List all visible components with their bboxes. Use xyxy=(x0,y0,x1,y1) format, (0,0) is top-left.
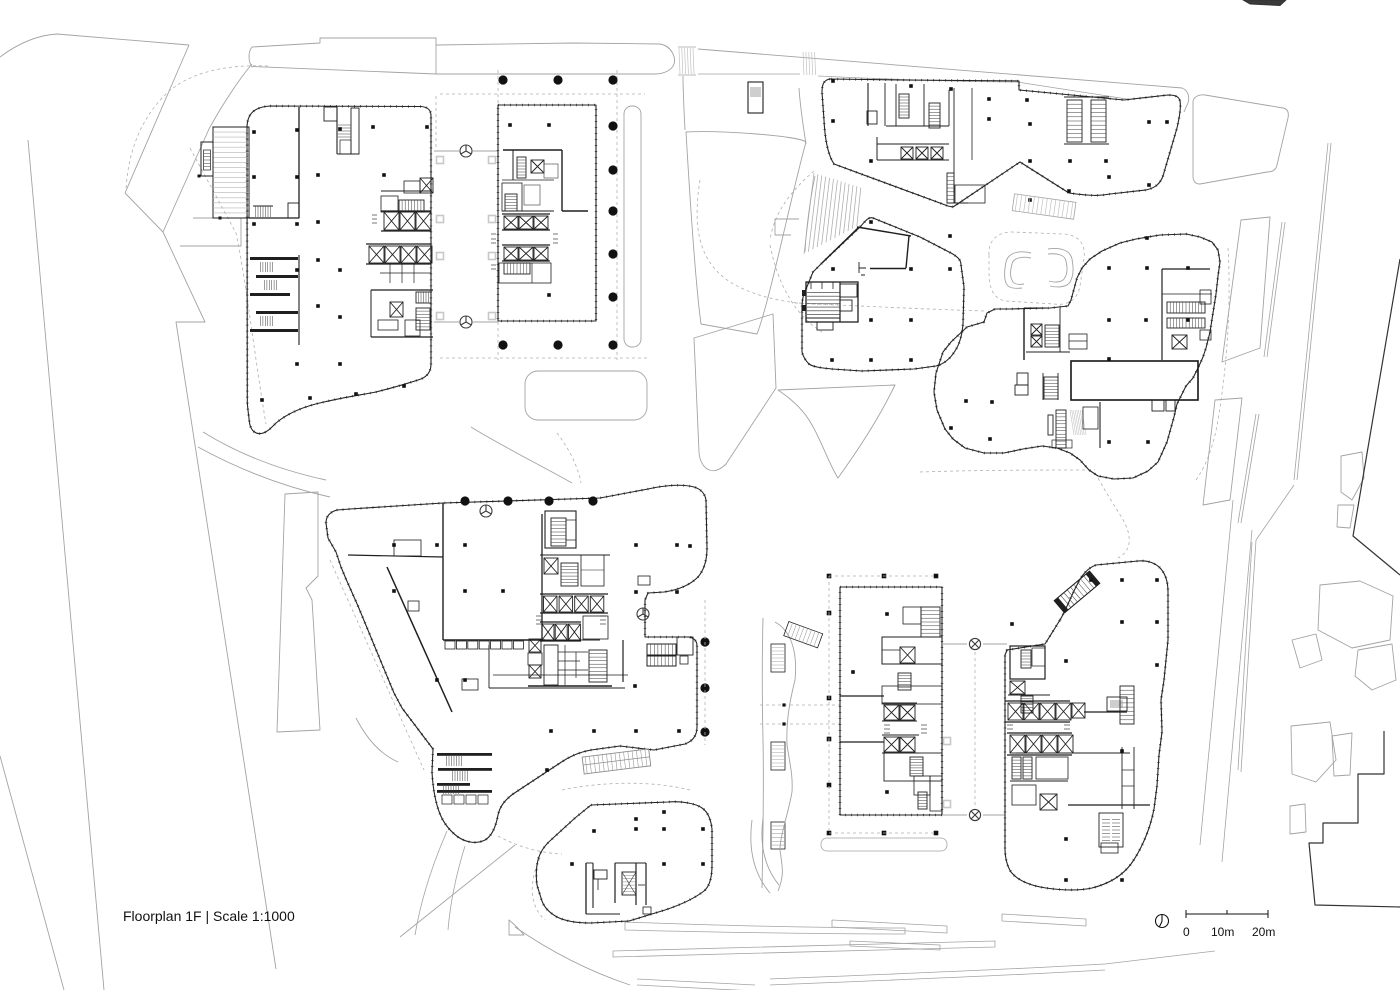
svg-text:20m: 20m xyxy=(1252,925,1275,939)
svg-text:0: 0 xyxy=(1183,925,1190,939)
svg-text:Floorplan 1F | Scale 1:1000: Floorplan 1F | Scale 1:1000 xyxy=(123,908,295,924)
svg-text:10m: 10m xyxy=(1211,925,1234,939)
